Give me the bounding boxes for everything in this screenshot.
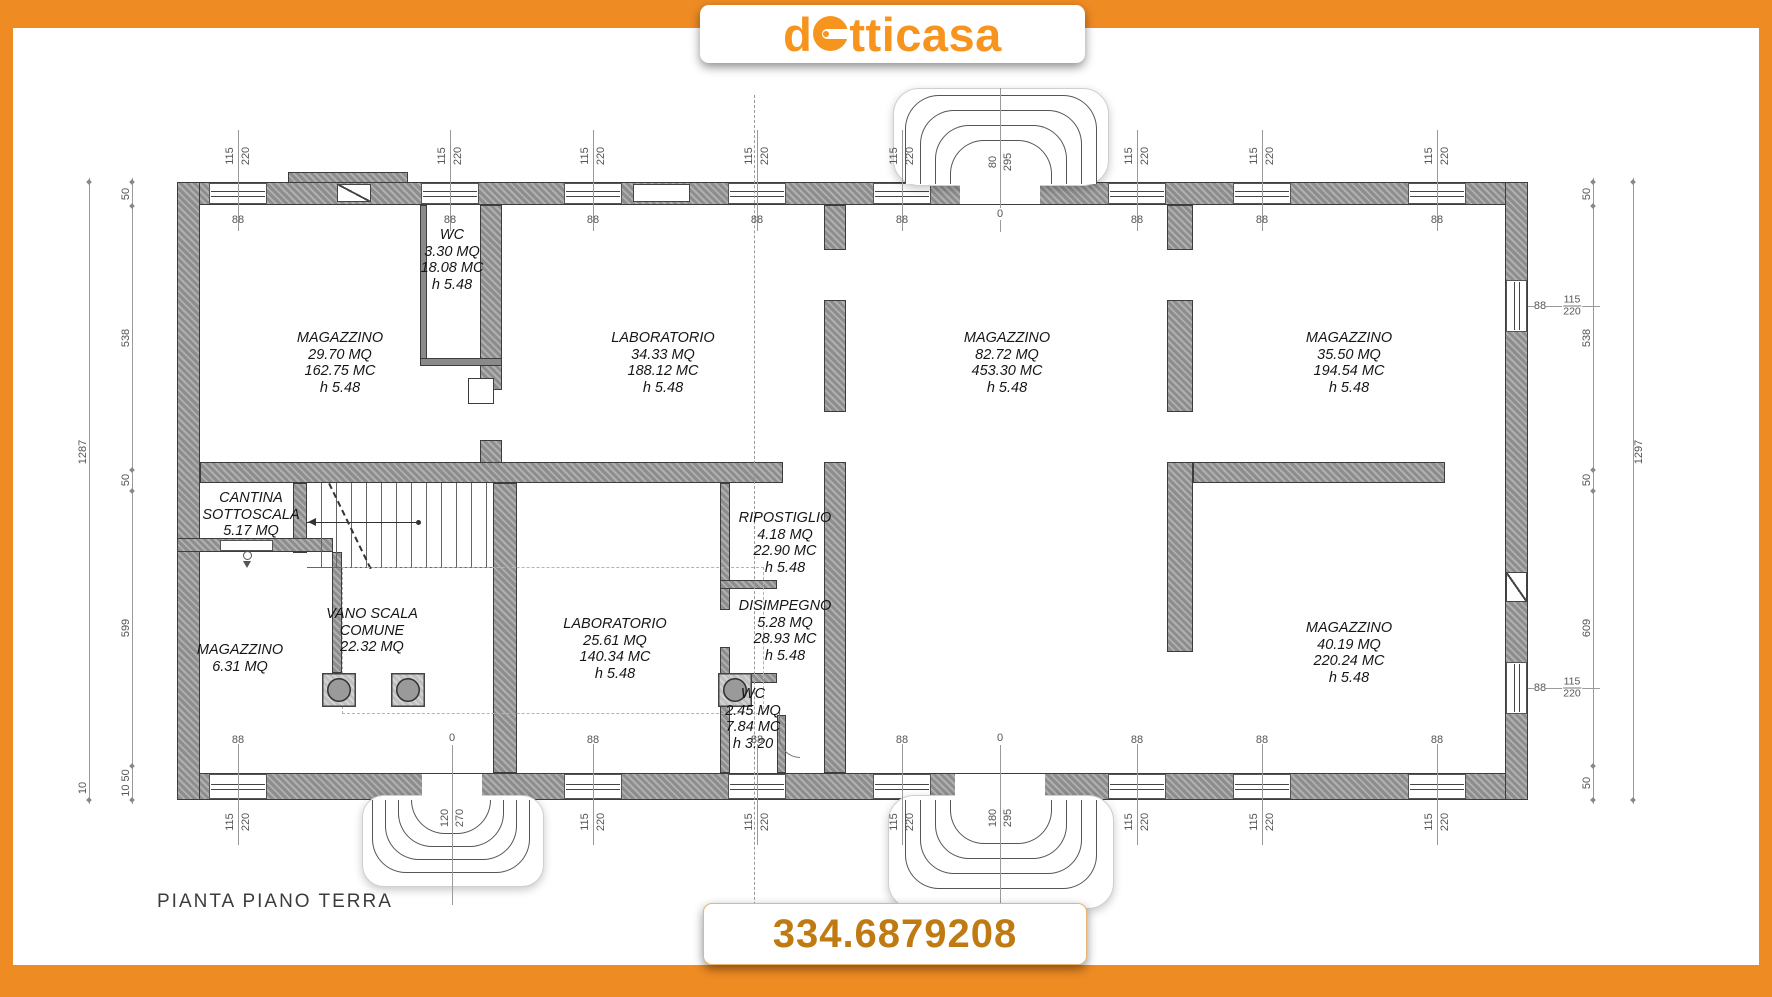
flyer-page: MAGAZZINO29.70 MQ 162.75 MCh 5.48 WC3.30… (0, 0, 1772, 997)
frame-left (0, 0, 13, 997)
dim-tick (1590, 797, 1596, 803)
wall (1167, 300, 1193, 412)
room-label-wc-top: WC3.30 MQ 18.08 MCh 5.48 (421, 227, 484, 293)
phone-card: 334.6879208 (703, 903, 1087, 965)
dim-label: 599 (120, 619, 132, 637)
room-label-laboratorio-top: LABORATORIO34.33 MQ 188.12 MCh 5.48 (611, 330, 714, 396)
dim-label: 180 (987, 809, 999, 827)
dim-label: 50 (1581, 474, 1593, 486)
dim-label-left-total: 1287 (77, 440, 89, 464)
wall (177, 182, 200, 800)
dim-tick (129, 763, 135, 769)
dim-tick (86, 797, 92, 803)
dim-label: 50 (1581, 188, 1593, 200)
wall (480, 440, 502, 463)
room-label-ripostiglio: RIPOSTIGLIO4.18 MQ 22.90 MCh 5.48 (739, 510, 832, 576)
frame-bottom (0, 965, 1772, 997)
door-symbol (243, 551, 252, 560)
dim-tick (129, 203, 135, 209)
dim-tick (1590, 203, 1596, 209)
dim-label: 538 (120, 329, 132, 347)
logo-o-icon (813, 16, 848, 51)
dim-label: 10 50 (120, 769, 132, 797)
stair-direction-arrow (307, 522, 419, 523)
dim-label-zero: 0 (449, 732, 455, 744)
dim-label-zero: 0 (997, 732, 1003, 744)
window-dim: 115220 (1562, 677, 1582, 700)
wall (1167, 205, 1193, 250)
room-label-magazzino-nw: MAGAZZINO29.70 MQ 162.75 MCh 5.48 (297, 330, 383, 396)
vent (633, 184, 690, 202)
dim-label: 10 (77, 782, 89, 794)
dim-label: 295 (1002, 153, 1014, 171)
dim-label: 80 (987, 156, 999, 168)
dim-label: 120 (439, 809, 451, 827)
plan-title: PIANTA PIANO TERRA (157, 891, 393, 913)
room-label-vano-scala: VANO SCALACOMUNE 22.32 MQ (326, 606, 418, 656)
dim-tick (1590, 467, 1596, 473)
dim-label: 88 (1534, 300, 1546, 312)
room-label-magazzino-ne: MAGAZZINO35.50 MQ 194.54 MCh 5.48 (1306, 330, 1392, 396)
vent (1506, 572, 1527, 602)
vent (337, 184, 371, 202)
cellar-door (220, 540, 273, 551)
dim-line (452, 745, 453, 905)
dim-tick (86, 179, 92, 185)
room-label-laboratorio-bottom: LABORATORIO25.61 MQ 140.34 MCh 5.48 (563, 616, 666, 682)
entrance-step (950, 800, 1052, 844)
frame-right (1759, 0, 1772, 997)
dim-line (89, 178, 90, 804)
dim-label: 270 (454, 809, 466, 827)
dim-tick (1590, 763, 1596, 769)
dim-label: 50 (120, 474, 132, 486)
window-dim: 115220 (1562, 295, 1582, 318)
door-symbol-arrow (243, 561, 251, 572)
dim-tick (129, 179, 135, 185)
wall-pier (468, 378, 494, 404)
wall (824, 300, 846, 412)
dim-tick (1630, 797, 1636, 803)
partition-wall (420, 358, 502, 366)
dim-label: 88 (1534, 682, 1546, 694)
dim-label: 50 (1581, 777, 1593, 789)
wall (1167, 462, 1193, 652)
dim-line (1633, 178, 1634, 804)
dim-label: 538 (1581, 329, 1593, 347)
logo-card: dtticasa (700, 5, 1085, 63)
room-label-magazzino-w: MAGAZZINO6.31 MQ (197, 642, 283, 675)
dim-tick (1590, 179, 1596, 185)
dim-tick (1590, 488, 1596, 494)
dim-label: 50 (120, 188, 132, 200)
dim-tick (129, 797, 135, 803)
dim-label-right-total: 1297 (1633, 440, 1645, 464)
wall (1193, 462, 1445, 483)
entrance-step (950, 140, 1052, 184)
dim-label: 609 (1581, 619, 1593, 637)
brand-logo: dtticasa (783, 7, 1002, 62)
column (391, 673, 425, 707)
column (322, 673, 356, 707)
dim-label: 295 (1002, 809, 1014, 827)
dim-label-zero: 0 (997, 208, 1003, 220)
window (1506, 662, 1527, 714)
phone-number: 334.6879208 (773, 912, 1018, 957)
room-label-cantina: CANTINASOTTOSCALA 5.17 MQ (202, 490, 299, 540)
room-label-disimpegno: DISIMPEGNO5.28 MQ 28.93 MCh 5.48 (739, 598, 832, 664)
window (1506, 280, 1527, 332)
room-label-magazzino-se: MAGAZZINO40.19 MQ 220.24 MCh 5.48 (1306, 620, 1392, 686)
dim-tick (129, 488, 135, 494)
dim-tick (1630, 179, 1636, 185)
wall (177, 182, 1528, 205)
wall (200, 462, 783, 483)
dim-tick (129, 467, 135, 473)
room-label-magazzino-center: MAGAZZINO82.72 MQ 453.30 MCh 5.48 (964, 330, 1050, 396)
wall (824, 205, 846, 250)
